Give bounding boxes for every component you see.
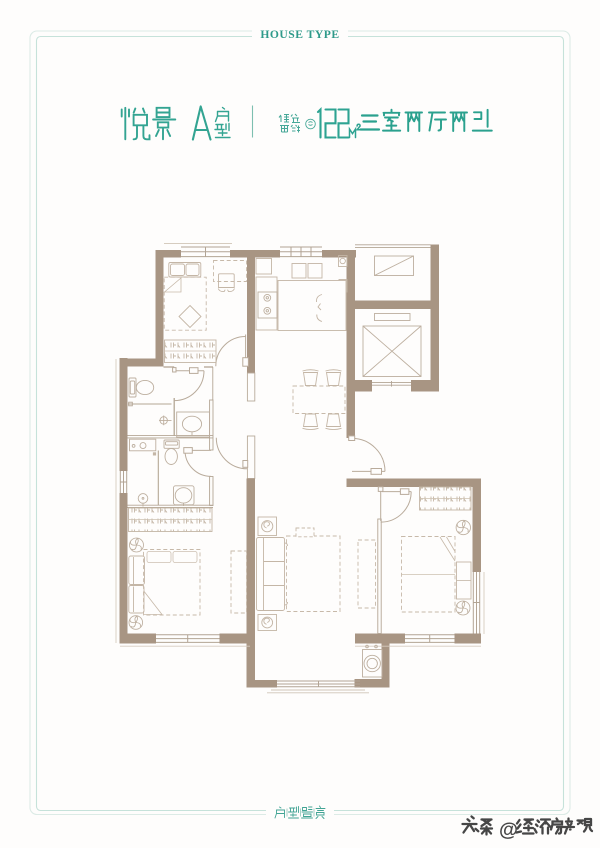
svg-text:HOUSE TYPE: HOUSE TYPE (260, 28, 339, 41)
svg-text:@: @ (499, 819, 518, 841)
